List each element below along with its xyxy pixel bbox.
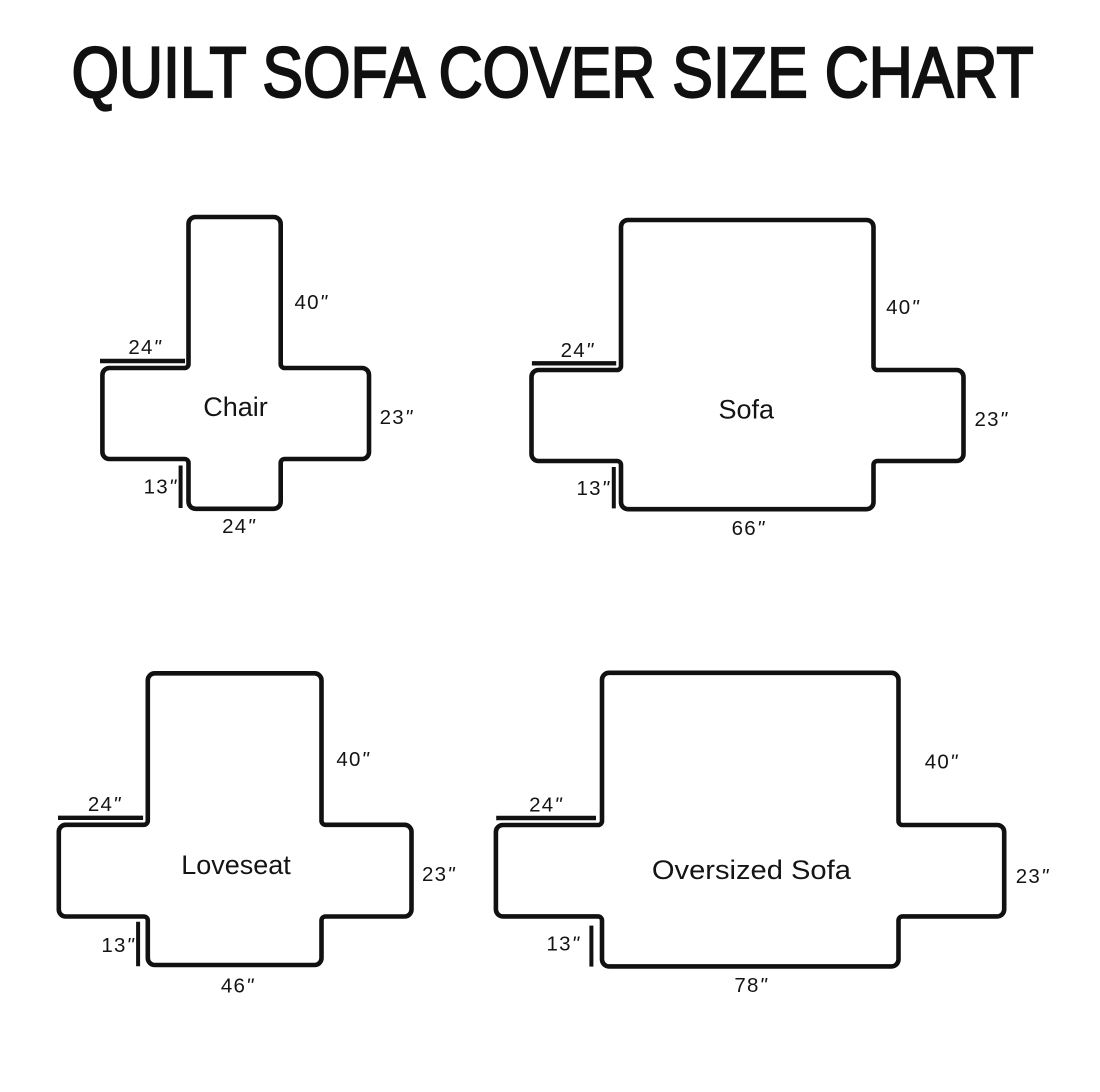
svg-text:13": 13" <box>101 934 135 957</box>
svg-text:24": 24" <box>88 793 122 816</box>
svg-text:24": 24" <box>128 336 162 359</box>
svg-text:40": 40" <box>925 751 959 774</box>
svg-text:46": 46" <box>221 975 255 998</box>
svg-text:13": 13" <box>547 933 581 956</box>
svg-text:24": 24" <box>561 339 595 362</box>
svg-text:23": 23" <box>1016 865 1050 888</box>
svg-text:Chair: Chair <box>203 392 268 422</box>
svg-text:23": 23" <box>422 863 456 886</box>
svg-text:Oversized Sofa: Oversized Sofa <box>652 855 852 885</box>
svg-text:40": 40" <box>295 291 329 314</box>
svg-text:23": 23" <box>975 408 1009 431</box>
svg-text:QUILT SOFA COVER SIZE CHART: QUILT SOFA COVER SIZE CHART <box>72 34 1034 113</box>
svg-text:40": 40" <box>886 296 920 319</box>
svg-text:40": 40" <box>336 748 370 771</box>
svg-text:66": 66" <box>732 517 766 540</box>
svg-text:Loveseat: Loveseat <box>181 850 291 880</box>
svg-text:13": 13" <box>577 477 611 500</box>
svg-text:13": 13" <box>144 476 178 499</box>
svg-text:24": 24" <box>529 794 563 817</box>
svg-text:24": 24" <box>222 515 256 538</box>
svg-text:78": 78" <box>734 974 768 997</box>
svg-text:Sofa: Sofa <box>719 395 776 425</box>
svg-text:23": 23" <box>380 406 414 429</box>
